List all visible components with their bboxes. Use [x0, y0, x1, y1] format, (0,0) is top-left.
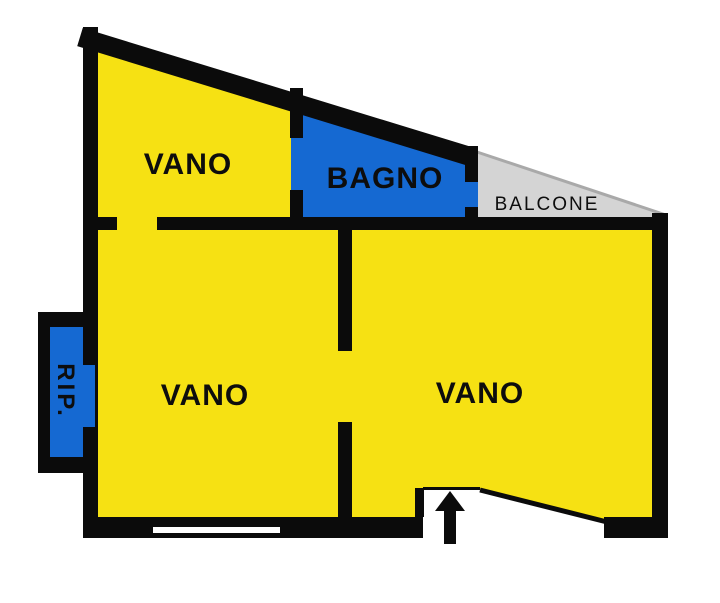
room-label-rip: RIP. [51, 363, 79, 419]
window-marker [153, 527, 280, 533]
floorplan-page: VANO BAGNO BALCONE RIP. VANO VANO [0, 0, 720, 603]
wall-bottom-divider-upper [338, 217, 352, 351]
room-label-balcone: BALCONE [495, 194, 600, 216]
wall-left-upper [83, 27, 98, 312]
room-label-bagno: BAGNO [327, 162, 444, 196]
entrance-threshold-line [423, 487, 480, 490]
floor-area [86, 34, 664, 530]
wall-vano-bagno-upper [290, 88, 303, 138]
room-label-vano-left: VANO [161, 379, 249, 413]
entrance-arrow-icon [435, 491, 465, 544]
wall-bagno-balcone-lower [465, 207, 478, 217]
room-label-vano-right: VANO [436, 377, 524, 411]
floorplan-canvas [0, 0, 720, 603]
wall-right [652, 213, 668, 538]
wall-horizontal-stub [98, 217, 117, 230]
wall-bottom-divider-lower [338, 422, 352, 517]
room-label-vano-top: VANO [144, 148, 232, 182]
wall-bagno-balcone-upper [465, 146, 478, 182]
wall-vano-bagno-lower [290, 190, 303, 217]
wall-horizontal-main [157, 217, 652, 230]
closet-wall-stub-bottom [83, 427, 98, 473]
entrance-jamb [415, 488, 424, 517]
closet-wall-stub-top [83, 312, 98, 365]
